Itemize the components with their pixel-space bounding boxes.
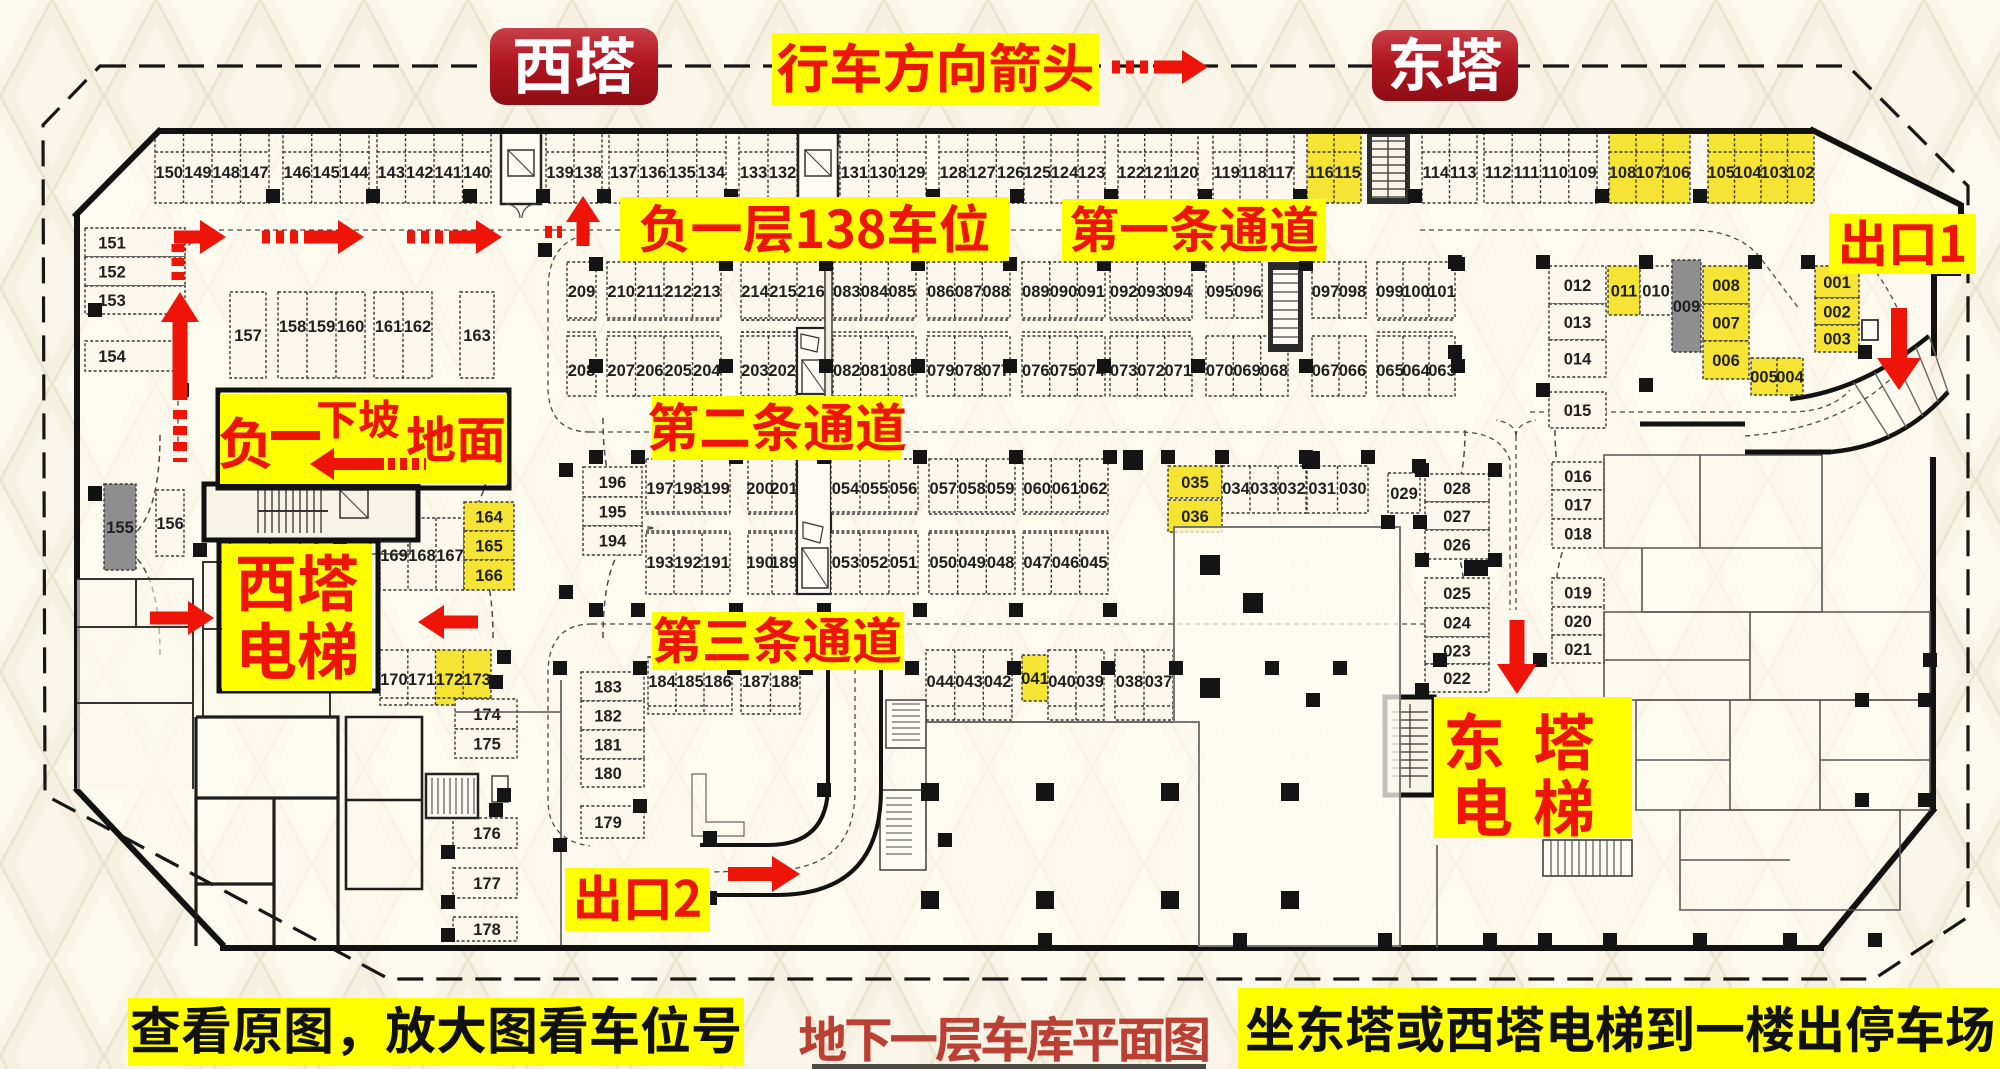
- svg-text:167: 167: [436, 547, 464, 565]
- svg-text:085: 085: [888, 283, 916, 301]
- svg-text:156: 156: [156, 515, 184, 533]
- svg-text:123: 123: [1078, 164, 1106, 182]
- svg-text:014: 014: [1564, 350, 1592, 368]
- svg-text:012: 012: [1564, 277, 1592, 295]
- svg-text:196: 196: [599, 474, 627, 492]
- svg-text:197: 197: [646, 480, 674, 498]
- svg-text:192: 192: [674, 554, 702, 572]
- svg-text:102: 102: [1787, 164, 1815, 182]
- svg-text:171: 171: [408, 671, 436, 689]
- svg-text:164: 164: [475, 508, 503, 526]
- svg-text:032: 032: [1278, 480, 1306, 498]
- svg-text:082: 082: [833, 362, 861, 380]
- svg-text:181: 181: [594, 736, 622, 754]
- svg-text:126: 126: [997, 164, 1025, 182]
- svg-text:071: 071: [1165, 362, 1193, 380]
- svg-text:121: 121: [1144, 164, 1172, 182]
- svg-text:152: 152: [98, 263, 126, 281]
- svg-text:142: 142: [406, 164, 434, 182]
- svg-text:201: 201: [770, 480, 798, 498]
- svg-text:211: 211: [636, 283, 663, 301]
- svg-text:173: 173: [463, 671, 491, 689]
- svg-text:042: 042: [984, 673, 1012, 691]
- svg-text:215: 215: [769, 283, 797, 301]
- svg-text:091: 091: [1077, 283, 1105, 301]
- svg-text:146: 146: [284, 164, 312, 182]
- svg-text:030: 030: [1339, 480, 1367, 498]
- svg-text:066: 066: [1339, 362, 1367, 380]
- svg-text:193: 193: [646, 554, 674, 572]
- svg-text:207: 207: [607, 362, 635, 380]
- svg-text:178: 178: [473, 921, 501, 939]
- svg-text:148: 148: [212, 164, 240, 182]
- svg-text:064: 064: [1402, 362, 1430, 380]
- svg-text:213: 213: [693, 283, 721, 301]
- svg-text:062: 062: [1080, 480, 1108, 498]
- svg-text:109: 109: [1569, 164, 1597, 182]
- svg-text:147: 147: [241, 164, 269, 182]
- svg-text:189: 189: [770, 554, 798, 572]
- svg-text:138: 138: [574, 164, 602, 182]
- svg-text:141: 141: [434, 164, 462, 182]
- svg-text:166: 166: [475, 567, 503, 585]
- svg-text:203: 203: [741, 362, 769, 380]
- svg-text:186: 186: [704, 673, 732, 691]
- svg-text:158: 158: [279, 318, 307, 336]
- svg-text:128: 128: [940, 164, 968, 182]
- svg-text:086: 086: [927, 283, 955, 301]
- svg-text:132: 132: [769, 164, 797, 182]
- svg-text:154: 154: [98, 348, 126, 366]
- svg-text:125: 125: [1024, 164, 1052, 182]
- svg-text:131: 131: [841, 164, 869, 182]
- svg-text:210: 210: [607, 283, 635, 301]
- svg-text:053: 053: [832, 554, 860, 572]
- svg-text:084: 084: [861, 283, 889, 301]
- svg-text:059: 059: [987, 480, 1015, 498]
- svg-text:017: 017: [1564, 496, 1592, 514]
- svg-text:027: 027: [1443, 508, 1471, 526]
- svg-text:026: 026: [1443, 536, 1471, 554]
- svg-text:020: 020: [1564, 613, 1592, 631]
- svg-text:092: 092: [1110, 283, 1138, 301]
- svg-text:038: 038: [1116, 673, 1144, 691]
- svg-text:007: 007: [1712, 314, 1740, 332]
- svg-text:106: 106: [1663, 164, 1691, 182]
- svg-text:177: 177: [473, 875, 501, 893]
- svg-text:019: 019: [1564, 584, 1592, 602]
- svg-text:023: 023: [1443, 642, 1471, 660]
- svg-text:040: 040: [1048, 673, 1076, 691]
- svg-text:011: 011: [1611, 282, 1638, 300]
- svg-text:004: 004: [1776, 368, 1804, 386]
- svg-text:018: 018: [1564, 525, 1592, 543]
- svg-text:008: 008: [1712, 277, 1740, 295]
- svg-text:090: 090: [1050, 283, 1078, 301]
- svg-text:003: 003: [1823, 330, 1851, 348]
- svg-text:145: 145: [312, 164, 340, 182]
- svg-text:051: 051: [890, 554, 918, 572]
- svg-text:088: 088: [982, 283, 1010, 301]
- svg-text:176: 176: [473, 825, 501, 843]
- svg-text:006: 006: [1712, 352, 1740, 370]
- svg-text:122: 122: [1118, 164, 1146, 182]
- svg-text:149: 149: [184, 164, 212, 182]
- svg-text:067: 067: [1312, 362, 1340, 380]
- svg-text:206: 206: [636, 362, 664, 380]
- svg-text:133: 133: [740, 164, 768, 182]
- svg-text:113: 113: [1450, 164, 1477, 182]
- svg-text:169: 169: [380, 547, 408, 565]
- svg-text:159: 159: [308, 318, 336, 336]
- svg-text:039: 039: [1076, 673, 1104, 691]
- svg-text:046: 046: [1052, 554, 1080, 572]
- svg-text:033: 033: [1250, 480, 1278, 498]
- svg-text:070: 070: [1206, 362, 1234, 380]
- svg-text:015: 015: [1564, 402, 1592, 420]
- svg-text:096: 096: [1234, 283, 1262, 301]
- svg-text:097: 097: [1312, 283, 1340, 301]
- svg-text:160: 160: [337, 318, 365, 336]
- svg-text:079: 079: [927, 362, 955, 380]
- svg-text:180: 180: [594, 765, 622, 783]
- svg-text:050: 050: [930, 554, 958, 572]
- svg-text:001: 001: [1823, 274, 1851, 292]
- svg-text:195: 195: [599, 503, 627, 521]
- svg-text:058: 058: [958, 480, 986, 498]
- svg-text:140: 140: [463, 164, 491, 182]
- svg-text:172: 172: [436, 671, 464, 689]
- svg-text:094: 094: [1165, 283, 1193, 301]
- svg-text:110: 110: [1541, 164, 1568, 182]
- svg-text:013: 013: [1564, 314, 1592, 332]
- svg-text:107: 107: [1636, 164, 1664, 182]
- svg-text:061: 061: [1052, 480, 1080, 498]
- svg-text:120: 120: [1171, 164, 1199, 182]
- svg-text:118: 118: [1240, 164, 1267, 182]
- svg-text:182: 182: [594, 707, 622, 725]
- svg-text:031: 031: [1308, 480, 1336, 498]
- svg-text:127: 127: [968, 164, 996, 182]
- svg-text:111: 111: [1514, 164, 1540, 182]
- svg-text:150: 150: [155, 164, 183, 182]
- svg-text:165: 165: [475, 537, 503, 555]
- svg-text:216: 216: [797, 283, 825, 301]
- svg-text:016: 016: [1564, 468, 1592, 486]
- svg-text:139: 139: [546, 164, 574, 182]
- svg-text:075: 075: [1050, 362, 1078, 380]
- svg-text:212: 212: [664, 283, 692, 301]
- svg-text:054: 054: [832, 480, 860, 498]
- svg-text:130: 130: [869, 164, 897, 182]
- svg-text:144: 144: [341, 164, 369, 182]
- svg-text:185: 185: [676, 673, 704, 691]
- svg-text:135: 135: [668, 164, 696, 182]
- svg-text:202: 202: [768, 362, 796, 380]
- svg-text:108: 108: [1609, 164, 1637, 182]
- svg-text:028: 028: [1443, 480, 1471, 498]
- svg-text:052: 052: [861, 554, 889, 572]
- svg-text:136: 136: [639, 164, 667, 182]
- svg-text:115: 115: [1334, 164, 1361, 182]
- svg-text:100: 100: [1402, 283, 1430, 301]
- svg-text:005: 005: [1750, 368, 1778, 386]
- svg-text:124: 124: [1051, 164, 1079, 182]
- svg-text:057: 057: [930, 480, 958, 498]
- svg-text:035: 035: [1181, 474, 1209, 492]
- svg-text:065: 065: [1376, 362, 1404, 380]
- svg-text:029: 029: [1390, 485, 1418, 503]
- svg-text:137: 137: [610, 164, 638, 182]
- svg-text:055: 055: [861, 480, 889, 498]
- svg-text:143: 143: [377, 164, 405, 182]
- svg-text:101: 101: [1428, 283, 1456, 301]
- svg-text:198: 198: [674, 480, 702, 498]
- svg-text:168: 168: [408, 547, 436, 565]
- svg-text:187: 187: [742, 673, 770, 691]
- svg-text:073: 073: [1110, 362, 1138, 380]
- svg-text:184: 184: [648, 673, 676, 691]
- svg-text:174: 174: [473, 706, 501, 724]
- svg-text:153: 153: [98, 292, 126, 310]
- svg-text:114: 114: [1422, 164, 1449, 182]
- svg-text:025: 025: [1443, 585, 1471, 603]
- svg-text:044: 044: [927, 673, 955, 691]
- svg-text:119: 119: [1213, 164, 1240, 182]
- svg-text:069: 069: [1233, 362, 1261, 380]
- svg-text:175: 175: [473, 735, 501, 753]
- svg-text:095: 095: [1206, 283, 1234, 301]
- svg-text:024: 024: [1443, 614, 1471, 632]
- svg-text:034: 034: [1222, 480, 1250, 498]
- svg-text:183: 183: [594, 678, 622, 696]
- svg-text:002: 002: [1823, 303, 1851, 321]
- svg-text:041: 041: [1021, 670, 1049, 688]
- svg-text:037: 037: [1145, 673, 1173, 691]
- svg-text:093: 093: [1137, 283, 1165, 301]
- svg-text:056: 056: [890, 480, 918, 498]
- svg-text:081: 081: [861, 362, 889, 380]
- svg-text:209: 209: [568, 283, 596, 301]
- svg-text:157: 157: [234, 327, 262, 345]
- svg-text:199: 199: [702, 480, 730, 498]
- svg-text:103: 103: [1760, 164, 1788, 182]
- svg-text:083: 083: [833, 283, 861, 301]
- svg-text:204: 204: [693, 362, 721, 380]
- svg-text:155: 155: [106, 519, 134, 537]
- svg-text:191: 191: [702, 554, 730, 572]
- svg-text:116: 116: [1307, 164, 1334, 182]
- svg-text:194: 194: [599, 532, 627, 550]
- svg-text:104: 104: [1734, 164, 1762, 182]
- svg-text:129: 129: [898, 164, 926, 182]
- svg-text:087: 087: [955, 283, 983, 301]
- svg-text:076: 076: [1022, 362, 1050, 380]
- svg-text:047: 047: [1023, 554, 1051, 572]
- svg-text:010: 010: [1642, 282, 1670, 300]
- svg-text:048: 048: [987, 554, 1015, 572]
- svg-text:078: 078: [955, 362, 983, 380]
- svg-text:072: 072: [1137, 362, 1165, 380]
- svg-text:043: 043: [955, 673, 983, 691]
- svg-text:179: 179: [594, 814, 622, 832]
- svg-text:105: 105: [1707, 164, 1735, 182]
- svg-text:022: 022: [1443, 670, 1471, 688]
- svg-text:163: 163: [463, 327, 491, 345]
- svg-text:049: 049: [958, 554, 986, 572]
- svg-text:098: 098: [1339, 283, 1367, 301]
- svg-text:009: 009: [1673, 298, 1701, 316]
- svg-text:214: 214: [741, 283, 769, 301]
- svg-text:036: 036: [1181, 508, 1209, 526]
- svg-text:134: 134: [698, 164, 726, 182]
- svg-text:099: 099: [1376, 283, 1404, 301]
- svg-text:117: 117: [1267, 164, 1294, 182]
- svg-text:089: 089: [1022, 283, 1050, 301]
- svg-text:045: 045: [1080, 554, 1108, 572]
- svg-text:151: 151: [98, 234, 126, 252]
- svg-text:188: 188: [771, 673, 799, 691]
- svg-text:205: 205: [664, 362, 692, 380]
- svg-text:162: 162: [404, 318, 432, 336]
- svg-text:068: 068: [1261, 362, 1289, 380]
- svg-text:161: 161: [375, 318, 403, 336]
- svg-text:060: 060: [1023, 480, 1051, 498]
- svg-text:021: 021: [1564, 641, 1592, 659]
- svg-text:170: 170: [380, 671, 408, 689]
- svg-text:112: 112: [1485, 164, 1512, 182]
